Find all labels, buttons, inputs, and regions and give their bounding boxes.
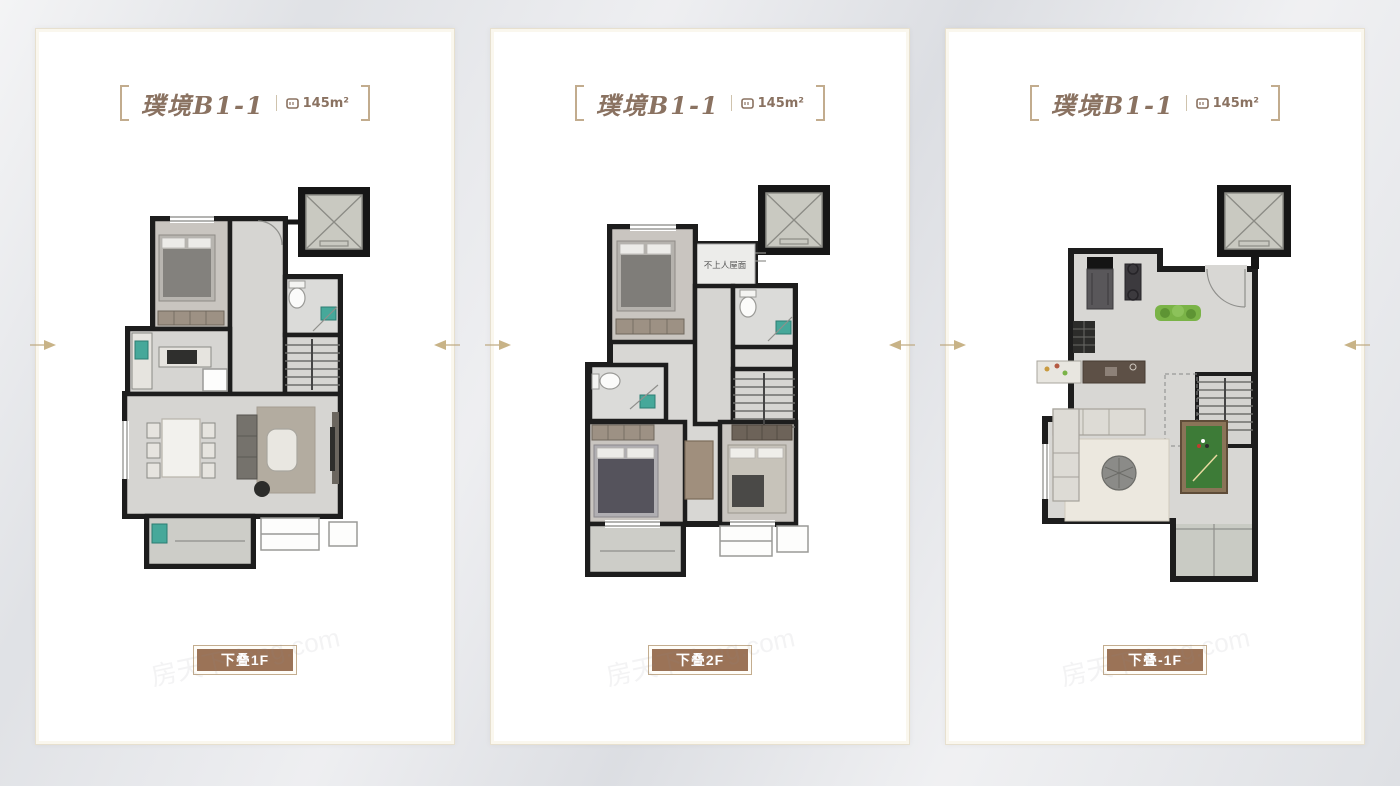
title-divider [276,95,277,111]
floor-label: 下叠-1F [1107,649,1203,671]
floor-label: 下叠2F [652,649,748,671]
floorplan-board: 房天下 fang.com 璞境B1-1 145m² [0,0,1400,786]
bracket-left-icon [575,85,584,121]
storage-shelf [1073,321,1095,353]
dining-set [147,419,215,478]
sink [321,307,336,320]
bracket-right-icon [361,85,370,121]
edge-arrow-right [432,339,460,351]
toilet [289,281,305,308]
elevator-shaft [283,187,370,257]
plan-title: 璞境B1-1 [596,86,720,121]
balcony [588,524,683,574]
area-icon [286,97,299,109]
area-badge: 145m² [1196,96,1259,111]
roof-area: 不上人屋面 [695,244,755,286]
edge-arrow-right [1342,339,1370,351]
area-value: 145m² [303,96,349,111]
wardrobe [158,311,224,325]
toilet-2 [592,373,620,389]
roof-note: 不上人屋面 [704,260,747,270]
edge-arrow-right [887,339,915,351]
bed [159,235,215,301]
elevator-shaft [755,185,830,261]
floorplan-neg1f[interactable] [945,169,1365,639]
floorplan-card-neg1f: 房天下 fang.com 璞境B1-1 145m² [945,28,1365,745]
title-divider [731,95,732,111]
plan-title-row: 璞境B1-1 145m² [575,83,825,123]
bracket-right-icon [816,85,825,121]
wardrobe-1 [616,319,684,334]
wardrobe-3 [732,425,792,440]
tv [330,427,335,471]
area-badge: 145m² [286,96,349,111]
laundry-sink [152,524,167,543]
edge-arrow-left [940,339,968,351]
billiard-table [1181,421,1227,493]
plan-title-row: 璞境B1-1 145m² [120,83,370,123]
toilet-1 [740,290,756,317]
bed-3 [728,445,786,513]
wardrobe-2 [592,425,654,440]
divider-cabinet [685,441,713,499]
plan-title: 璞境B1-1 [141,86,265,121]
side-table [254,481,270,497]
floorplan-card-1f: 房天下 fang.com 璞境B1-1 145m² [35,28,455,745]
floorplan-1f[interactable] [35,169,455,639]
desk [1083,361,1145,383]
bracket-left-icon [120,85,129,121]
exercise-bike [1125,264,1141,300]
windows [1041,444,1049,499]
treadmill [1087,257,1113,309]
sink-1 [776,321,791,334]
bed-2 [594,445,658,517]
bracket-left-icon [1030,85,1039,121]
floor-label: 下叠1F [197,649,293,671]
elevator-shaft [1217,185,1291,269]
floor-tag: 下叠-1F [1103,645,1207,675]
area-value: 145m² [758,96,804,111]
floorplan-card-2f: 房天下 fang.com 璞境B1-1 145m² [490,28,910,745]
round-table [1102,456,1136,490]
edge-arrow-left [485,339,513,351]
bed-1 [617,241,675,311]
hallway [695,286,733,424]
patio [1176,524,1252,576]
floor-tag: 下叠1F [193,645,297,675]
title-divider [1186,95,1187,111]
area-icon [1196,97,1209,109]
plant-hedge [1155,305,1201,321]
coffee-table [267,429,297,471]
plan-title: 璞境B1-1 [1051,86,1175,121]
floor-tag: 下叠2F [648,645,752,675]
bathroom-2 [590,365,666,421]
ac-platforms [261,518,357,550]
area-value: 145m² [1213,96,1259,111]
stove [167,350,197,364]
fridge [203,369,227,391]
area-badge: 145m² [741,96,804,111]
edge-arrow-left [30,339,58,351]
sink-2 [640,395,655,408]
bracket-right-icon [1271,85,1280,121]
flower-table [1037,361,1081,383]
plan-title-row: 璞境B1-1 145m² [1030,83,1280,123]
area-icon [741,97,754,109]
floorplan-2f[interactable]: 不上人屋面 [490,169,910,639]
sofa [237,415,257,479]
hallway [230,219,285,394]
ac-platforms [720,526,808,556]
